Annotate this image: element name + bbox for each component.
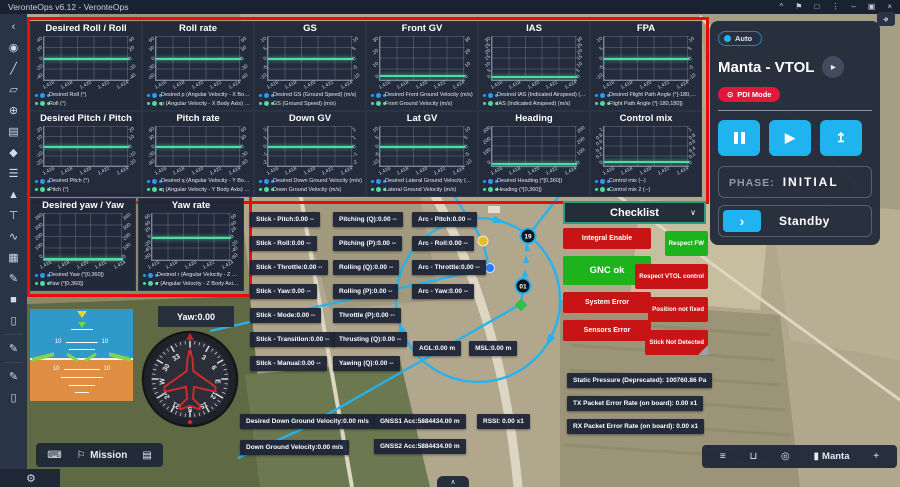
y-axis-right: 1050-5-10 bbox=[465, 126, 476, 167]
legend-entry: r (Angular Velocity - Z Body Axis) (°/s) bbox=[142, 280, 240, 289]
delete-icon[interactable]: ▯ bbox=[0, 387, 27, 408]
chart-title: Down GV bbox=[255, 112, 365, 126]
vehicle-select-button[interactable]: ▮ Manta bbox=[814, 451, 850, 462]
x-axis: 1,4161,4181,4201,4221,424 bbox=[255, 168, 365, 176]
unlock-icon[interactable]: ⊔ bbox=[749, 451, 757, 462]
chart-plot bbox=[379, 36, 465, 81]
telemetry-readout: Arc - Pitch:0.00 -- bbox=[412, 212, 477, 227]
sidebar-divider bbox=[4, 362, 23, 363]
chart-title: Front GV bbox=[367, 22, 477, 36]
chevron-down-icon: ∨ bbox=[690, 208, 696, 217]
waypoint-marker[interactable]: 01 bbox=[516, 279, 531, 294]
legend-entry: Front Ground Velocity (m/s) bbox=[370, 100, 474, 109]
chart-title: IAS bbox=[479, 22, 589, 36]
play-icon: ▶ bbox=[785, 130, 795, 146]
elevation-icon[interactable]: ▲ bbox=[0, 184, 27, 205]
telemetry-chart: Heading 3002001000 3002001000 1,4161,418… bbox=[478, 111, 590, 197]
x-axis: 1,4161,4181,4201,4221,424 bbox=[143, 82, 253, 90]
chart-legend: Desired p (Angular Velocity - X Body Axi… bbox=[143, 90, 253, 110]
chart-plot bbox=[151, 213, 231, 261]
y-axis-left: 20100-10-20 bbox=[32, 126, 43, 167]
legend-entry: Desired Heading (°[0,360]) bbox=[482, 177, 586, 186]
telemetry-readout: Arc - Roll:0.00 -- bbox=[412, 236, 474, 251]
telemetry-chart: Lat GV 1050-5-10 1050-5-10 1,4161,4181,4… bbox=[366, 111, 478, 197]
telemetry-readout: Arc - Yaw:0.00 -- bbox=[412, 284, 474, 299]
series-line bbox=[156, 146, 241, 148]
telemetry-readout: Stick - Mode:0.00 -- bbox=[250, 308, 321, 323]
compass-label: E bbox=[213, 379, 220, 384]
chart-plot bbox=[491, 126, 577, 167]
x-axis: 1,4161,4181,4201,4221,424 bbox=[367, 168, 477, 176]
telemetry-readout: Stick - Roll:0.00 -- bbox=[250, 236, 317, 251]
add-icon[interactable]: + bbox=[873, 451, 879, 462]
legend-entry: Control mix 2 (--) bbox=[594, 186, 698, 195]
legend-entry: Desired Pitch (°) bbox=[34, 177, 138, 186]
annotate-icon[interactable]: ✎ bbox=[0, 366, 27, 387]
legend-entry: Lateral Ground Velocity (m/s) bbox=[370, 186, 474, 195]
chart-legend: Desired GS (Ground Speed) (m/s) GS (Grou… bbox=[255, 90, 365, 110]
pitch-tick-label: 10 bbox=[102, 339, 109, 345]
fullscreen-expand-button[interactable]: » bbox=[877, 12, 895, 26]
legend-entry: Desired Front Ground Velocity (m/s) bbox=[370, 91, 474, 100]
x-axis: 1,4161,4181,4201,4221,424 bbox=[479, 82, 589, 90]
battery-icon: ▮ bbox=[814, 451, 820, 462]
x-axis: 1,4161,4181,4201,4221,424 bbox=[479, 168, 589, 176]
standby-go-button[interactable]: › bbox=[723, 210, 761, 232]
telemetry-readout: Stick - Yaw:0.00 -- bbox=[250, 284, 317, 299]
chart-title: FPA bbox=[591, 22, 701, 36]
waypoint-label: 19 bbox=[524, 234, 532, 241]
legend-entry: Yaw (°[0,360]) bbox=[34, 280, 132, 289]
legend-entry: Down Ground Velocity (m/s) bbox=[258, 186, 362, 195]
legend-entry: Desired Yaw (°[0,360]) bbox=[34, 271, 132, 280]
telemetry-chart: FPA 1050-5-10 1050-5-10 1,4161,4181,4201… bbox=[590, 21, 702, 111]
legend-entry: Desired Roll (°) bbox=[34, 91, 138, 100]
telemetry-readout: Yawing (Q):0.00 -- bbox=[333, 356, 400, 371]
telemetry-readout: Down Ground Velocity:0.00 m/s bbox=[240, 440, 349, 455]
status-button-stick-not-detected[interactable]: Stick Not Detected bbox=[645, 330, 708, 355]
filled-square-icon[interactable]: ■ bbox=[0, 289, 27, 310]
x-axis: 1,4161,4181,4201,4221,424 bbox=[143, 168, 253, 176]
panel-divider bbox=[718, 110, 872, 111]
y-axis-left: 1050-5-10 bbox=[592, 36, 603, 81]
y-axis-left: 60300-30-60 bbox=[144, 36, 155, 81]
y-axis-left: 210-1-2 bbox=[256, 126, 267, 167]
chart-title: Desired yaw / Yaw bbox=[31, 199, 135, 213]
measure-line-icon[interactable]: ╱ bbox=[0, 58, 27, 79]
left-toolbar: ‹◉╱▱⊕▤◆☰▲⊤∿▦✎■▯✎✎▯ bbox=[0, 14, 27, 487]
yaw-readout: Yaw:0.00 bbox=[158, 306, 234, 327]
chart-plot bbox=[155, 36, 241, 81]
legend-entry: Desired Flight Path Angle (°[-180,180]) bbox=[594, 91, 698, 100]
y-axis-right: 3603002001000 bbox=[123, 213, 134, 261]
compass-gauge[interactable]: N36E1215S2124W3033 bbox=[141, 330, 239, 428]
series-line bbox=[156, 58, 241, 60]
telemetry-readout: Stick - Manual:0.00 -- bbox=[250, 356, 327, 371]
y-axis-right: 10.80.60.40.20 bbox=[689, 126, 700, 167]
settings-gear-icon[interactable]: ⚙ bbox=[26, 472, 36, 485]
telemetry-chart: Down GV 210-1-2 210-1-2 1,4161,4181,4201… bbox=[254, 111, 366, 197]
x-axis: 1,4161,4181,4201,4221,424 bbox=[31, 262, 135, 270]
chart-legend: Desired IAS (Indicated Airspeed) (m/s) I… bbox=[479, 90, 589, 110]
collapse-icon[interactable]: ‹ bbox=[0, 16, 27, 37]
telemetry-readout: MSL:0.00 m bbox=[469, 341, 517, 356]
grid-table-icon[interactable]: ▦ bbox=[0, 247, 27, 268]
x-axis: 1,4161,4181,4201,4221,424 bbox=[31, 168, 141, 176]
telemetry-chart: Pitch rate 60300-30-60 60300-30-60 1,416… bbox=[142, 111, 254, 197]
y-axis-left: 6040200-20-40-60 bbox=[140, 213, 151, 261]
chart-legend: Desired q (Angular Velocity - Y Body Axi… bbox=[143, 176, 253, 196]
play-button[interactable]: ▶ bbox=[769, 120, 811, 156]
keyboard-icon[interactable]: ⌨ bbox=[47, 450, 61, 461]
y-axis-right: 20100-10-20 bbox=[129, 126, 140, 167]
chart-title: Control mix bbox=[591, 112, 701, 126]
status-button-respect-vtol-control[interactable]: Respect VTOL control bbox=[635, 264, 708, 289]
chart-title: Lat GV bbox=[367, 112, 477, 126]
chart-plot bbox=[43, 126, 129, 167]
y-axis-right: 1050-5-10 bbox=[353, 36, 364, 81]
x-axis: 1,4161,4181,4201,4221,424 bbox=[591, 168, 701, 176]
standby-label: Standby bbox=[779, 214, 830, 228]
legend-entry: Desired Lateral Ground Velocity (m/s) bbox=[370, 177, 474, 186]
x-axis: 1,4161,4181,4201,4221,424 bbox=[367, 82, 477, 90]
telemetry-readout: Throttle (P):0.00 -- bbox=[333, 308, 401, 323]
chart-title: GS bbox=[255, 22, 365, 36]
telemetry-chart: Front GV 3020100 3020100 1,4161,4181,420… bbox=[366, 21, 478, 111]
upload-button[interactable]: ↥ bbox=[820, 120, 862, 156]
attitude-indicator[interactable]: 10 10 10 10 bbox=[30, 309, 133, 401]
telemetry-readout: Desired Down Ground Velocity:0.00 m/s bbox=[240, 414, 375, 429]
mission-toolbar: ⌨ ⚐ Mission ▤ bbox=[36, 443, 163, 467]
landing-marker[interactable] bbox=[515, 299, 528, 312]
chart-plot bbox=[43, 213, 123, 261]
chart-plot bbox=[603, 36, 689, 81]
expand-bottom-tab[interactable]: ∧ bbox=[437, 476, 469, 487]
visibility-icon[interactable]: ◎ bbox=[781, 451, 790, 462]
y-axis-left: 1050-5-10 bbox=[256, 36, 267, 81]
upload-icon: ↥ bbox=[836, 130, 847, 146]
attitude-ground bbox=[30, 358, 133, 401]
pdi-mode-label: PDI Mode bbox=[737, 90, 771, 99]
checklist-dropdown[interactable]: Checklist ∨ bbox=[563, 201, 706, 224]
y-axis-right: 60300-30-60 bbox=[241, 126, 252, 167]
chart-plot bbox=[267, 36, 353, 81]
window-title: VeronteOps v6.12 - VeronteOps bbox=[8, 2, 129, 12]
draw-icon[interactable]: ✎ bbox=[0, 338, 27, 359]
telemetry-readout: Stick - Pitch:0.00 -- bbox=[250, 212, 320, 227]
map-toolbar: ≡ ⊔ ◎ ▮ Manta + bbox=[702, 445, 897, 468]
telemetry-chart: Yaw rate 6040200-20-40-60 6040200-20-40-… bbox=[138, 198, 244, 291]
legend-entry: Roll (°) bbox=[34, 100, 138, 109]
chart-legend: Desired Yaw (°[0,360]) Yaw (°[0,360]) bbox=[31, 270, 135, 290]
telemetry-group-altitude: AGL:0.00 mMSL:0.00 m bbox=[413, 341, 517, 356]
series-line bbox=[44, 58, 129, 60]
polygon-icon[interactable]: ▱ bbox=[0, 79, 27, 100]
telemetry-readout: RX Packet Error Rate (on board): 0.00 x1 bbox=[567, 419, 704, 434]
y-axis-right: 3020100 bbox=[465, 36, 476, 81]
waypoint-label: 01 bbox=[519, 284, 527, 291]
series-line bbox=[268, 146, 353, 148]
flag-icon[interactable]: ⚑ bbox=[795, 0, 802, 14]
legend-entry: Heading (°[0,360]) bbox=[482, 186, 586, 195]
y-axis-right: 6040200-20-40-60 bbox=[231, 213, 242, 261]
status-button-respect-fw[interactable]: Respect FW bbox=[665, 231, 708, 256]
checklist-label: Checklist bbox=[610, 207, 659, 219]
series-line bbox=[380, 146, 465, 148]
chart-legend: Desired Front Ground Velocity (m/s) Fron… bbox=[367, 90, 477, 110]
telemetry-readout: Rolling (P):0.00 -- bbox=[333, 284, 398, 299]
y-axis-left: 60300-30-60 bbox=[144, 126, 155, 167]
chevron-up-icon[interactable]: ^ bbox=[780, 0, 784, 14]
mission-button[interactable]: ⚐ Mission bbox=[77, 446, 128, 464]
bottom-corner-strip: ⚙ bbox=[0, 469, 60, 487]
chart-legend: Desired Down Ground Velocity (m/s) Down … bbox=[255, 176, 365, 196]
chart-legend: Desired Flight Path Angle (°[-180,180]) … bbox=[591, 90, 701, 110]
vehicle-panel: Auto Manta - VTOL ▸ ⊙ PDI Mode ▶ ↥ PHASE… bbox=[710, 21, 880, 245]
auto-label: Auto bbox=[735, 34, 752, 43]
pdi-mode-badge[interactable]: ⊙ PDI Mode bbox=[718, 87, 780, 102]
telemetry-readout: Arc - Throttle:0.00 -- bbox=[412, 260, 486, 275]
telemetry-readout: AGL:0.00 m bbox=[413, 341, 461, 356]
chart-plot bbox=[379, 126, 465, 167]
pin-icon[interactable]: ⊤ bbox=[0, 205, 27, 226]
pause-icon bbox=[734, 132, 745, 144]
curve-icon[interactable]: ∿ bbox=[0, 226, 27, 247]
y-axis-left: 10.80.60.40.20 bbox=[592, 126, 603, 167]
chart-title: Yaw rate bbox=[139, 199, 243, 213]
filter-icon[interactable]: ≡ bbox=[720, 451, 726, 462]
clipboard-icon[interactable]: ▤ bbox=[0, 121, 27, 142]
series-line bbox=[604, 161, 689, 163]
status-column-right: Respect FWRespect VTOL controlPosition n… bbox=[636, 231, 708, 355]
veronteops-window: 19 01 VeronteOps v6.12 - VeronteOps ^⚑□⋮… bbox=[0, 0, 900, 487]
location-pin-icon[interactable]: ◉ bbox=[0, 37, 27, 58]
phase-value: INITIAL bbox=[783, 175, 839, 189]
pentagon-marker-icon[interactable]: ◆ bbox=[0, 142, 27, 163]
telemetry-chart: GS 1050-5-10 1050-5-10 1,4161,4181,4201,… bbox=[254, 21, 366, 111]
route-flag-icon: ⚐ bbox=[77, 450, 86, 461]
legend-entry: Desired r (Angular Velocity - Z Body Axi… bbox=[142, 271, 240, 280]
legend-entry: Desired Down Ground Velocity (m/s) bbox=[258, 177, 362, 186]
chart-title: Pitch rate bbox=[143, 112, 253, 126]
telemetry-readout: Rolling (Q):0.00 -- bbox=[333, 260, 399, 275]
series-line bbox=[152, 237, 231, 239]
trash-icon[interactable]: ▯ bbox=[0, 310, 27, 331]
pause-button[interactable] bbox=[718, 120, 760, 156]
chart-plot bbox=[603, 126, 689, 167]
chart-title: Desired Pitch / Pitch bbox=[31, 112, 141, 126]
legend-entry: Control mix (--) bbox=[594, 177, 698, 186]
y-axis-left: 3603002001000 bbox=[32, 213, 43, 261]
x-axis: 1,4161,4181,4201,4221,424 bbox=[591, 82, 701, 90]
series-line bbox=[268, 58, 353, 60]
y-axis-left: 3002001000 bbox=[480, 126, 491, 167]
x-axis: 1,4161,4181,4201,4221,424 bbox=[31, 82, 141, 90]
telemetry-readout: GNSS1 Acc:5884434.00 m bbox=[374, 414, 466, 429]
y-axis-right: 40200-20-40 bbox=[129, 36, 140, 81]
restore-icon[interactable]: ▣ bbox=[868, 0, 876, 14]
menu-dots-icon[interactable]: ⋮ bbox=[831, 0, 839, 14]
y-axis-right: 210-1-2 bbox=[353, 126, 364, 167]
telemetry-group-mixing: Pitching (Q):0.00 --Pitching (P):0.00 --… bbox=[333, 212, 407, 371]
chart-plot bbox=[491, 36, 577, 81]
title-bar: VeronteOps v6.12 - VeronteOps ^⚑□⋮–▣× bbox=[0, 0, 900, 14]
legend-entry: GS (Ground Speed) (m/s) bbox=[258, 100, 362, 109]
phase-box: PHASE: INITIAL bbox=[718, 166, 872, 198]
vehicle-position-marker[interactable] bbox=[486, 264, 495, 273]
chart-legend: Control mix (--) Control mix 2 (--) bbox=[591, 176, 701, 196]
pitch-tick-label: 10 bbox=[53, 366, 60, 372]
telemetry-chart: Desired Roll / Roll 40200-20-40 40200-20… bbox=[30, 21, 142, 111]
telemetry-readout: Pitching (P):0.00 -- bbox=[333, 236, 402, 251]
telemetry-group-link: Static Pressure (Deprecated): 100760.86 … bbox=[567, 373, 712, 434]
globe-icon[interactable]: ⊕ bbox=[0, 100, 27, 121]
legend-entry: p (Angular Velocity - X Body Axis) (°/s) bbox=[146, 100, 250, 109]
chart-title: Desired Roll / Roll bbox=[31, 22, 141, 36]
chart-legend: Desired Pitch (°) Pitch (°) bbox=[31, 176, 141, 196]
telemetry-readout: GNSS2 Acc:5884434.00 m bbox=[374, 439, 466, 454]
telemetry-chart: Roll rate 60300-30-60 60300-30-60 1,4161… bbox=[142, 21, 254, 111]
telemetry-chart: IAS 302520151050 302520151050 1,4161,418… bbox=[478, 21, 590, 111]
pdi-mode-icon: ⊙ bbox=[727, 90, 733, 99]
routes-icon[interactable]: ☰ bbox=[0, 163, 27, 184]
legend-entry: q (Angular Velocity - Y Body Axis) (°/s) bbox=[146, 186, 250, 195]
edit-box-icon[interactable]: ✎ bbox=[0, 268, 27, 289]
chart-plot bbox=[155, 126, 241, 167]
telemetry-group-arc: Arc - Pitch:0.00 --Arc - Roll:0.00 --Arc… bbox=[412, 212, 486, 299]
joystick-icon[interactable]: ▸ bbox=[822, 56, 844, 78]
compass-label: W bbox=[160, 378, 167, 385]
telemetry-chart: Desired yaw / Yaw 3603002001000 36030020… bbox=[30, 198, 136, 291]
telemetry-readout: Stick - Transition:0.00 -- bbox=[250, 332, 335, 347]
chart-title: Roll rate bbox=[143, 22, 253, 36]
series-line bbox=[492, 163, 577, 165]
auto-toggle[interactable]: Auto bbox=[718, 31, 762, 46]
legend-entry: Desired GS (Ground Speed) (m/s) bbox=[258, 91, 362, 100]
telemetry-group-stick: Stick - Pitch:0.00 --Stick - Roll:0.00 -… bbox=[250, 212, 335, 371]
chart-legend: Desired Roll (°) Roll (°) bbox=[31, 90, 141, 110]
x-axis: 1,4161,4181,4201,4221,424 bbox=[255, 82, 365, 90]
legend-entry: Desired IAS (Indicated Airspeed) (m/s) bbox=[482, 91, 586, 100]
legend-entry: IAS (Indicated Airspeed) (m/s) bbox=[482, 100, 586, 109]
legend-entry: Desired p (Angular Velocity - X Body Axi… bbox=[146, 91, 250, 100]
status-button-position-not-fixed[interactable]: Position not fixed bbox=[648, 297, 708, 322]
waypoint-marker[interactable]: 19 bbox=[521, 229, 536, 244]
y-axis-left: 3020100 bbox=[368, 36, 379, 81]
aircraft-pointer-icon bbox=[78, 322, 86, 328]
y-axis-right: 60300-30-60 bbox=[241, 36, 252, 81]
y-axis-right: 3002001000 bbox=[577, 126, 588, 167]
telemetry-readout: Thrusting (Q):0.00 -- bbox=[333, 332, 407, 347]
telemetry-chart: Desired Pitch / Pitch 20100-10-20 20100-… bbox=[30, 111, 142, 197]
pitch-tick-label: 10 bbox=[104, 366, 111, 372]
legend-entry: Desired q (Angular Velocity - Y Body Axi… bbox=[146, 177, 250, 186]
telemetry-readout: TX Packet Error Rate (on board): 0.00 x1 bbox=[567, 396, 703, 411]
y-axis-left: 40200-20-40 bbox=[32, 36, 43, 81]
telemetry-chart: Control mix 10.80.60.40.20 10.80.60.40.2… bbox=[590, 111, 702, 197]
telemetry-readout: Static Pressure (Deprecated): 100760.86 … bbox=[567, 373, 712, 388]
telemetry-group-gnss: GNSS1 Acc:5884434.00 mGNSS2 Acc:5884434.… bbox=[374, 414, 466, 454]
phase-label: PHASE: bbox=[729, 177, 775, 189]
telemetry-group-rssi: RSSI: 0.00 x1 bbox=[477, 414, 530, 429]
series-line bbox=[44, 258, 123, 260]
telemetry-group-down-velocity: Desired Down Ground Velocity:0.00 m/sDow… bbox=[240, 414, 375, 455]
telemetry-readout: Pitching (Q):0.00 -- bbox=[333, 212, 403, 227]
mission-label: Mission bbox=[90, 450, 127, 461]
chart-plot bbox=[43, 36, 129, 81]
telemetry-readout: RSSI: 0.00 x1 bbox=[477, 414, 530, 429]
pitch-tick-label: 10 bbox=[55, 339, 62, 345]
series-line bbox=[44, 146, 129, 148]
series-line bbox=[604, 58, 689, 60]
map-save-icon[interactable]: ▤ bbox=[142, 450, 151, 461]
minimize-icon[interactable]: – bbox=[851, 0, 855, 14]
chart-plot bbox=[267, 126, 353, 167]
chart-legend: Desired r (Angular Velocity - Z Body Axi… bbox=[139, 270, 243, 290]
legend-entry: Flight Path Angle (°[-180,180]) bbox=[594, 100, 698, 109]
series-line bbox=[492, 76, 577, 78]
x-axis: 1,4161,4181,4201,4221,424 bbox=[139, 262, 243, 270]
y-axis-left: 1050-5-10 bbox=[368, 126, 379, 167]
chart-title: Heading bbox=[479, 112, 589, 126]
legend-entry: Pitch (°) bbox=[34, 186, 138, 195]
chart-legend: Desired Lateral Ground Velocity (m/s) La… bbox=[367, 176, 477, 196]
y-axis-right: 302520151050 bbox=[577, 36, 588, 81]
y-axis-left: 302520151050 bbox=[480, 36, 491, 81]
standby-row: › Standby bbox=[718, 205, 872, 237]
sidebar-divider bbox=[4, 334, 23, 335]
vehicle-name: Manta - VTOL bbox=[718, 59, 814, 76]
chevron-right-icon: › bbox=[740, 213, 745, 229]
telemetry-readout: Stick - Throttle:0.00 -- bbox=[250, 260, 328, 275]
series-line bbox=[380, 75, 465, 77]
y-axis-right: 1050-5-10 bbox=[689, 36, 700, 81]
chart-legend: Desired Heading (°[0,360]) Heading (°[0,… bbox=[479, 176, 589, 196]
auto-toggle-dot bbox=[724, 35, 731, 42]
bank-pointer-icon bbox=[77, 311, 87, 318]
vehicle-select-label: Manta bbox=[822, 451, 849, 462]
maximize-icon[interactable]: □ bbox=[814, 0, 819, 14]
